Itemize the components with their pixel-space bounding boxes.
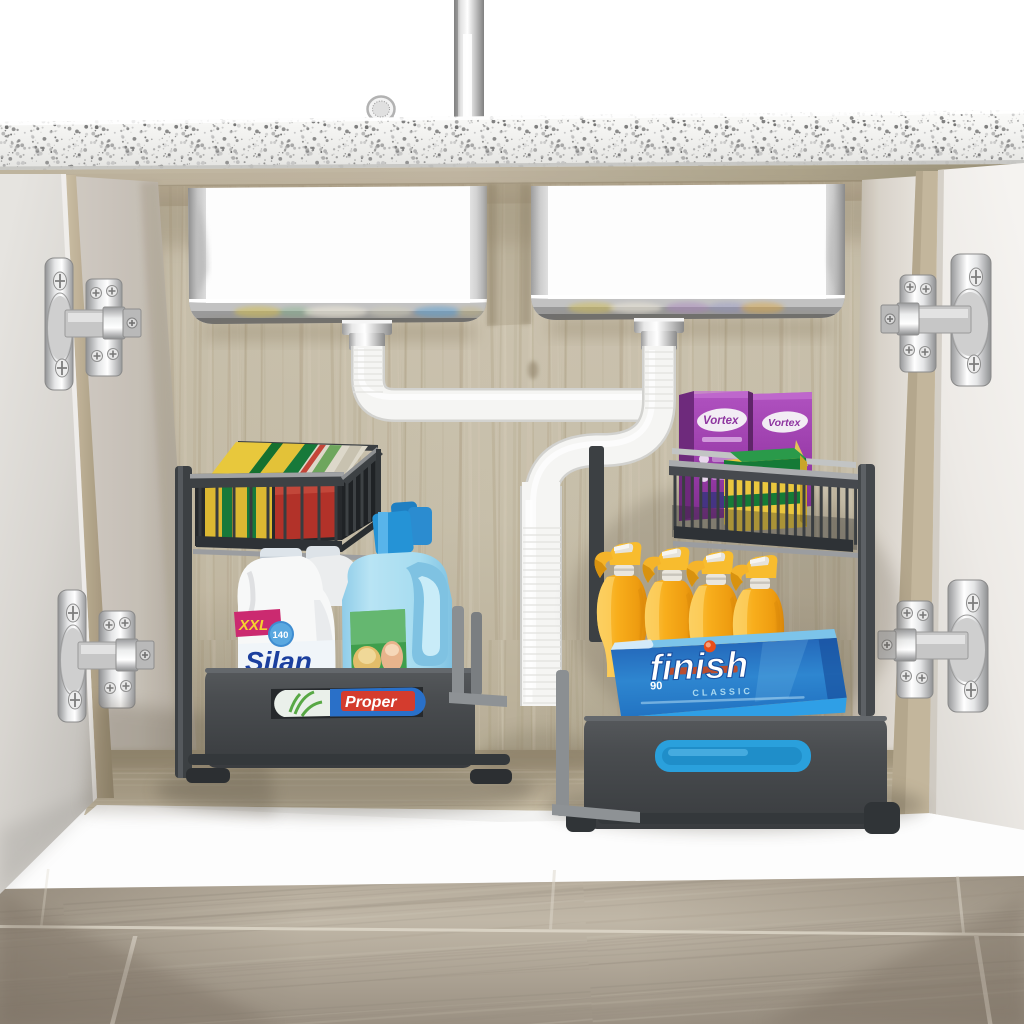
svg-text:Vortex: Vortex bbox=[703, 415, 739, 427]
svg-text:90: 90 bbox=[650, 680, 663, 692]
svg-text:XXL: XXL bbox=[238, 617, 268, 634]
svg-text:Proper: Proper bbox=[345, 694, 397, 711]
svg-text:CLASSIC: CLASSIC bbox=[692, 686, 753, 698]
svg-text:140: 140 bbox=[273, 630, 289, 641]
svg-text:Vortex: Vortex bbox=[768, 417, 801, 429]
svg-text:finish: finish bbox=[649, 644, 749, 688]
